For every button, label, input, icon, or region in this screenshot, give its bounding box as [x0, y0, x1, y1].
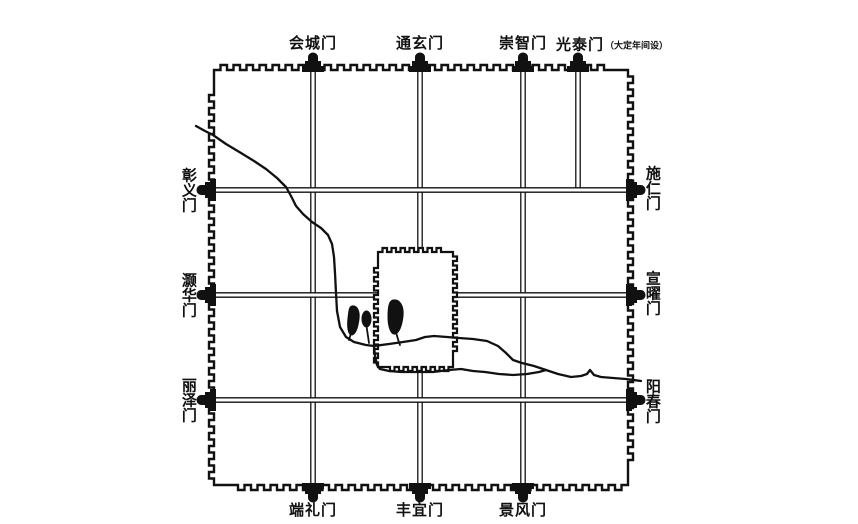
- gate-label-zhangyi: 彰义门: [180, 168, 196, 213]
- gate-label-duanli: 端礼门: [289, 503, 337, 519]
- gate-label-yangchun: 阳春门: [644, 379, 660, 424]
- city-map-canvas: 会城门 通玄门 崇智门 光泰门 （大定年间设） 施仁门 宣曜门 阳春门 端礼门 …: [0, 0, 858, 524]
- lake-channel-middle: [367, 326, 370, 343]
- street-chongzhi-jingfeng: [521, 70, 525, 485]
- gate-tower-icon-xuanyao: [626, 284, 646, 306]
- gate-label-shiren: 施仁门: [644, 166, 660, 211]
- gate-label-huicheng: 会城门: [289, 36, 337, 52]
- street-huicheng-duanli: [311, 70, 315, 485]
- city-map-drawing: [0, 0, 858, 524]
- gate-label-tongxuan: 通玄门: [396, 36, 444, 52]
- gate-tower-icon-tongxuan: [409, 53, 431, 73]
- gate-tower-icon-shiren: [626, 179, 646, 201]
- gate-label-haohua: 灏华门: [180, 273, 196, 318]
- gate-tower-icon-jingfeng: [512, 483, 534, 503]
- lake-west: [348, 306, 360, 335]
- gate-tower-icon-duanli: [302, 483, 324, 503]
- gate-label-fengyi: 丰宜门: [396, 503, 444, 519]
- gate-label-guangtai: 光泰门 （大定年间设）: [556, 34, 668, 55]
- gate-label-guangtai-text: 光泰门: [556, 34, 604, 55]
- street-guangtai: [576, 70, 580, 189]
- inner-city-wall: [374, 248, 457, 371]
- street-fengyi-lower: [418, 367, 422, 485]
- gate-tower-icon-chongzhi: [512, 53, 534, 73]
- gate-label-xuanyao: 宣曜门: [644, 271, 660, 316]
- lake-middle: [362, 311, 371, 327]
- gate-label-guangtai-note: （大定年间设）: [605, 37, 668, 52]
- gate-tower-icon-haohua: [197, 284, 217, 306]
- street-xuanyao-east: [453, 293, 628, 297]
- gate-label-lize: 丽泽门: [180, 378, 196, 423]
- gate-tower-icon-zhangyi: [197, 179, 217, 201]
- gate-tower-icon-huicheng: [302, 53, 324, 73]
- gate-tower-icon-fengyi: [409, 483, 431, 503]
- street-lize-yangchun: [214, 398, 628, 402]
- street-haohua-west: [214, 293, 378, 297]
- street-zhangyi-shiren: [214, 188, 628, 192]
- gate-tower-icon-yangchun: [626, 389, 646, 411]
- gate-tower-icon-lize: [197, 389, 217, 411]
- street-tongxuan-upper: [418, 70, 422, 252]
- gate-label-chongzhi: 崇智门: [499, 36, 547, 52]
- gate-tower-icon-guangtai: [567, 53, 589, 73]
- gate-label-jingfeng: 景风门: [499, 503, 547, 519]
